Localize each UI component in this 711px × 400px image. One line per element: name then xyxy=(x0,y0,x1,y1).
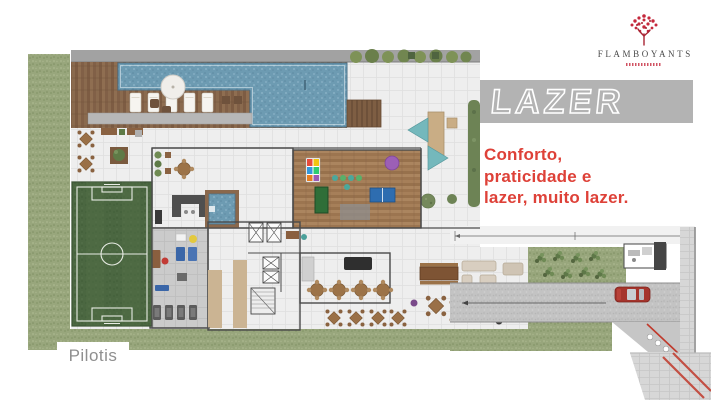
tagline-line-3: lazer, muito lazer. xyxy=(484,187,654,209)
tagline-text: Conforto, praticidade e lazer, muito laz… xyxy=(484,144,654,209)
plan-caption-box: Pilotis xyxy=(57,342,129,369)
plan-caption: Pilotis xyxy=(69,346,118,366)
right-sidewalk xyxy=(680,227,695,355)
soccer-field xyxy=(72,182,152,326)
car xyxy=(615,287,650,302)
toy-shelf xyxy=(306,158,320,182)
pouf-chair xyxy=(385,156,399,170)
left-grass-strip xyxy=(28,54,70,350)
piano xyxy=(344,257,372,270)
billiards-table xyxy=(315,187,328,213)
lazer-banner: LAZER xyxy=(480,80,693,123)
banner-title: LAZER xyxy=(489,85,626,119)
staircase xyxy=(251,288,275,314)
games-room xyxy=(293,150,421,228)
driveway-end-zone xyxy=(612,322,680,354)
deck-walkway xyxy=(88,113,252,124)
long-table xyxy=(420,263,458,285)
tagline-line-2: praticidade e xyxy=(484,166,654,188)
pergola xyxy=(347,100,381,127)
terrace-planter xyxy=(110,147,128,164)
gatehouse xyxy=(624,242,666,270)
logo-tagline xyxy=(626,63,662,66)
play-mat xyxy=(340,204,370,220)
tagline-line-1: Conforto, xyxy=(484,144,654,166)
brand-logo: FLAMBOYANTS xyxy=(589,12,699,66)
gym xyxy=(150,228,208,328)
slide: Pilotis FLAMBOYANTS LAZER Conforto, prat… xyxy=(0,0,711,400)
brand-name: FLAMBOYANTS xyxy=(595,49,693,59)
flamboyant-tree-icon xyxy=(624,12,664,46)
dimension-band xyxy=(450,226,695,244)
corner-sidewalk xyxy=(630,353,711,400)
